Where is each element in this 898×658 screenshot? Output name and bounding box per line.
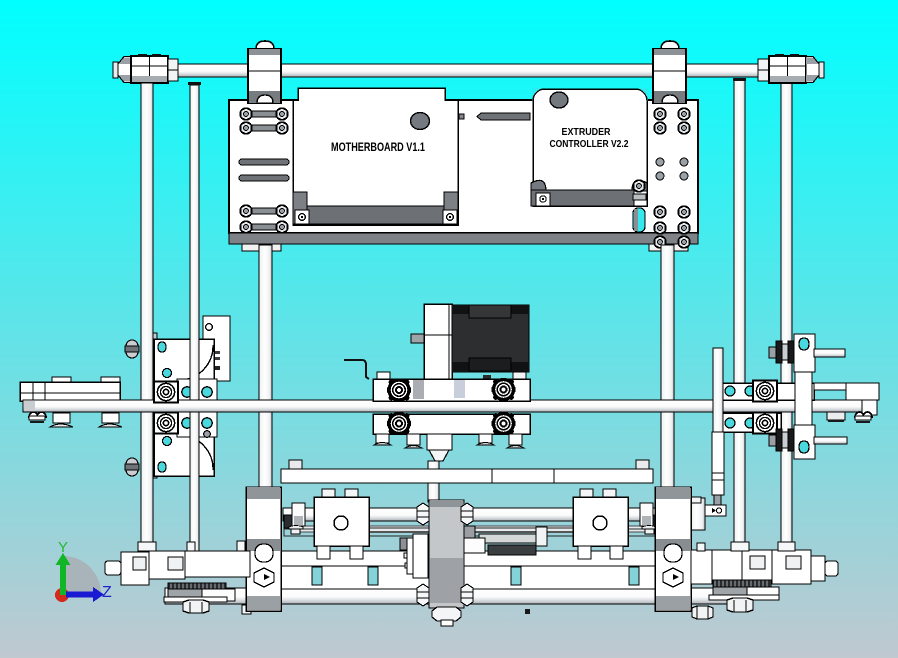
- svg-text:EXTRUDER: EXTRUDER: [562, 126, 611, 138]
- svg-text:CONTROLLER V2.2: CONTROLLER V2.2: [550, 138, 629, 150]
- svg-text:MOTHERBOARD V1.1: MOTHERBOARD V1.1: [331, 142, 425, 154]
- svg-text:Z: Z: [102, 584, 112, 601]
- svg-text:Y: Y: [58, 539, 68, 556]
